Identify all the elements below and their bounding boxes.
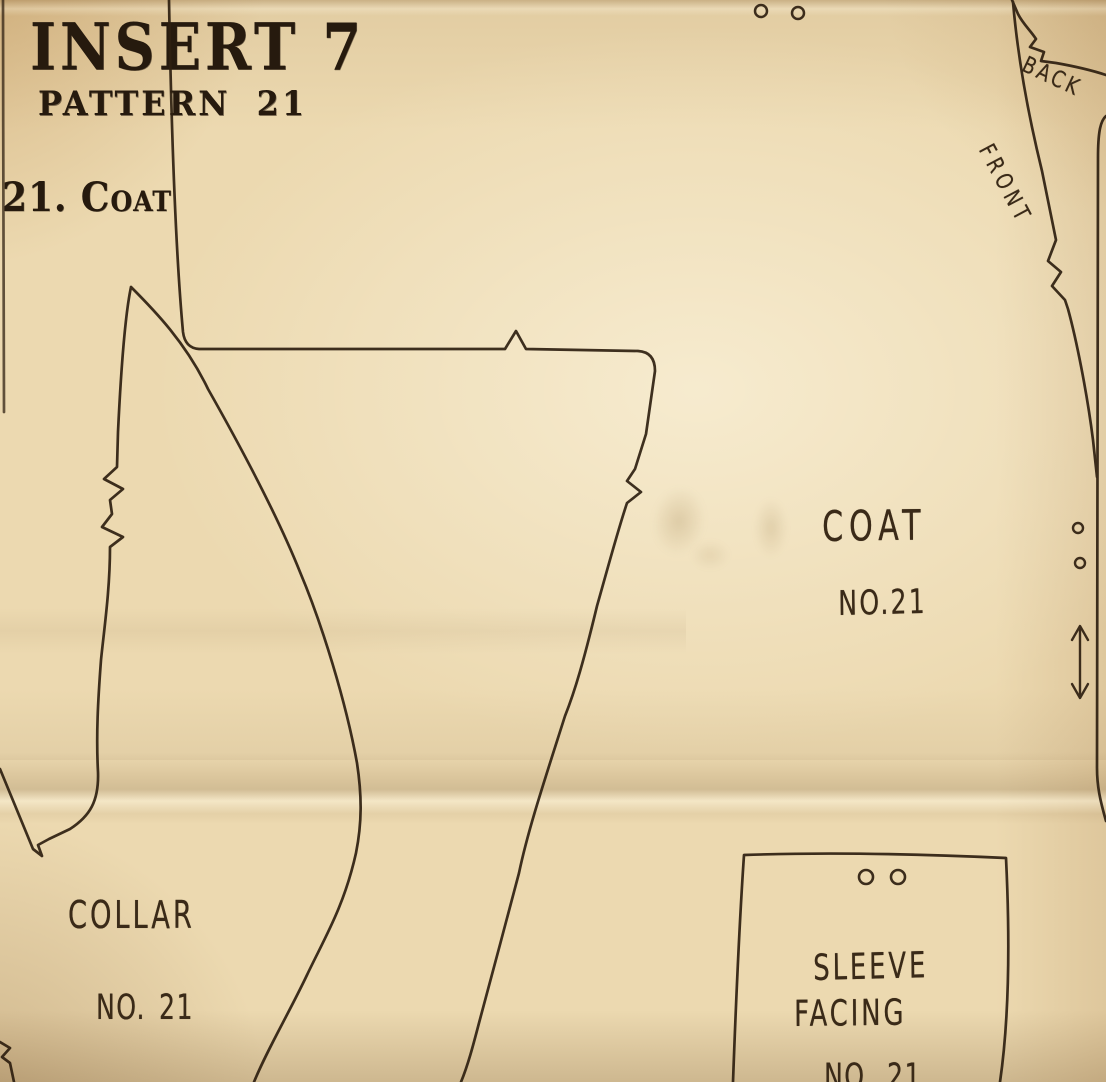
coat-piece-label: COAT bbox=[822, 500, 927, 551]
collar-outline-path bbox=[0, 287, 361, 1082]
collar-piece-number: NO. 21 bbox=[96, 988, 194, 1028]
sheet-title: INSERT 7 bbox=[30, 10, 365, 86]
sheet-subtitle: PATTERN 21 bbox=[38, 84, 307, 124]
front-edge-label: FRONT bbox=[973, 140, 1037, 229]
coat-piece-number: NO.21 bbox=[838, 582, 927, 624]
sleeve-facing-label-line2: FACING bbox=[794, 993, 907, 1035]
ink-smudge bbox=[690, 540, 730, 570]
punch-hole-icon bbox=[1073, 523, 1085, 568]
sleeve-facing-number: NO. 21 bbox=[824, 1057, 922, 1082]
ink-smudge bbox=[754, 498, 788, 558]
pattern-sheet: INSERT 7 PATTERN 21 21. Coat COAT NO.21 … bbox=[0, 0, 1106, 1082]
collar-piece-label: COLLAR bbox=[68, 893, 195, 937]
punch-hole-icon bbox=[859, 870, 905, 884]
paper-fold-crease bbox=[0, 752, 1106, 824]
sleeve-facing-label-line1: SLEEVE bbox=[813, 945, 929, 989]
back-edge-label: BACK bbox=[1018, 52, 1086, 102]
ink-smudge bbox=[647, 483, 710, 560]
paper-fold-shade bbox=[0, 688, 1106, 760]
grainline-arrow-icon bbox=[1072, 626, 1088, 698]
punch-hole-icon bbox=[755, 5, 804, 19]
paper-crease-soft bbox=[0, 608, 686, 654]
sheet-right-edge-path bbox=[1097, 116, 1106, 821]
coat-outline-path bbox=[169, 0, 655, 1082]
bottom-left-notch-path bbox=[0, 1042, 14, 1082]
sheet-index-label: 21. Coat bbox=[2, 174, 172, 221]
